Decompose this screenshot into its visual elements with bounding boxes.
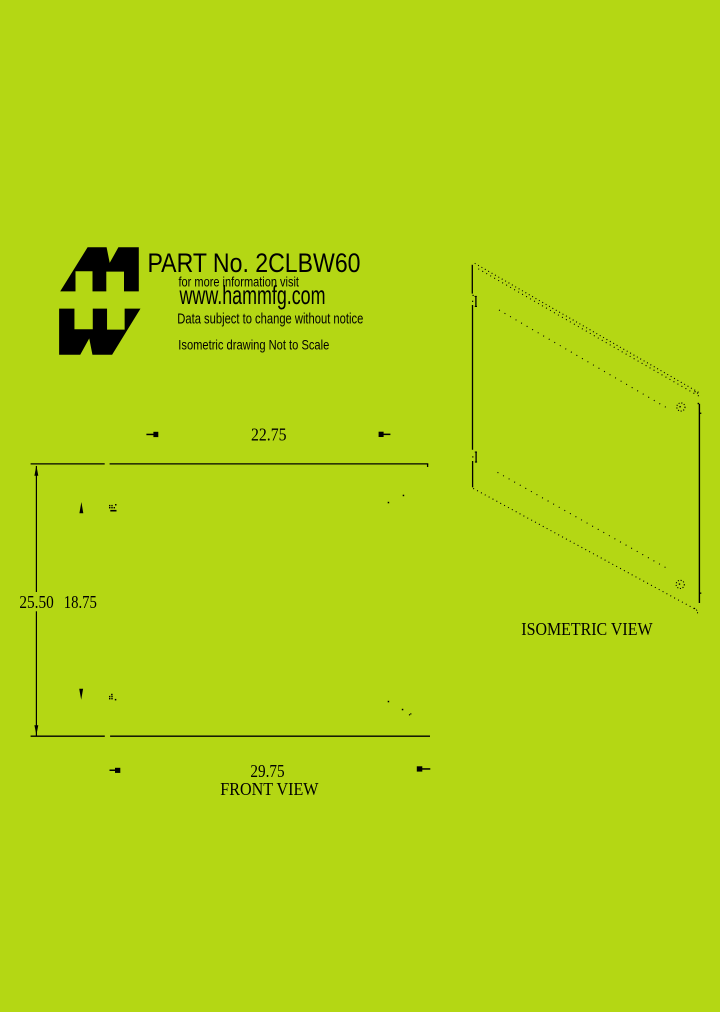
svg-text:Data subject to change without: Data subject to change without notice	[177, 310, 363, 327]
svg-text:FRONT VIEW: FRONT VIEW	[220, 779, 318, 799]
svg-text:ISOMETRIC VIEW: ISOMETRIC VIEW	[521, 619, 652, 639]
svg-text:25.50: 25.50	[19, 592, 53, 612]
svg-text:29.75: 29.75	[250, 761, 284, 781]
svg-text:www.hammfg.com: www.hammfg.com	[179, 280, 326, 310]
svg-text:Isometric drawing Not to Scale: Isometric drawing Not to Scale	[178, 336, 329, 352]
svg-text:22.75: 22.75	[251, 425, 287, 445]
svg-text:18.75: 18.75	[64, 592, 97, 612]
